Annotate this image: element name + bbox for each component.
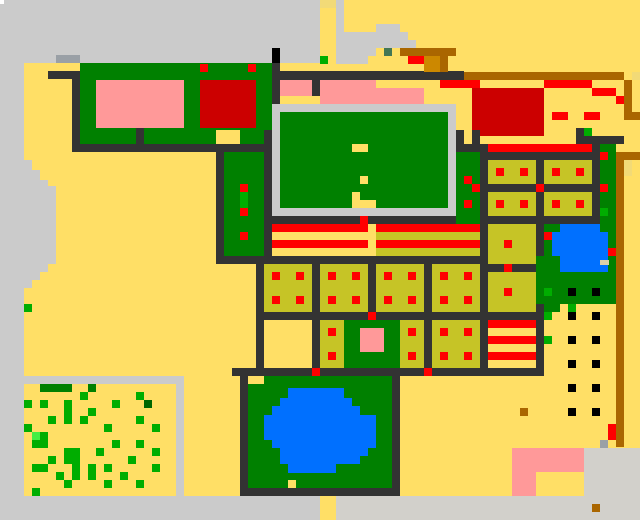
pixel-rect <box>80 416 88 424</box>
pixel-rect <box>576 200 584 208</box>
pixel-rect <box>376 24 400 32</box>
pixel-rect <box>376 240 480 248</box>
pixel-rect <box>392 48 400 56</box>
pixel-rect <box>136 392 144 400</box>
pixel-rect <box>440 328 448 336</box>
pixel-rect <box>352 192 360 200</box>
pixel-rect <box>376 248 480 256</box>
pixel-rect <box>408 352 416 360</box>
east-brown-road <box>616 160 624 447</box>
pixel-rect <box>24 304 32 312</box>
pixel-rect <box>136 416 144 424</box>
pixel-rect <box>272 104 456 112</box>
pixel-rect <box>488 312 536 320</box>
pixel-rect <box>600 440 608 448</box>
teal-cell <box>384 48 392 56</box>
pixel-rect <box>536 184 544 192</box>
pixel-rect <box>152 464 160 472</box>
pixel-rect <box>552 112 568 120</box>
pixel-rect <box>296 296 304 304</box>
pixel-rect <box>296 272 304 280</box>
pixel-rect <box>360 176 368 184</box>
pixel-rect <box>488 152 592 160</box>
pixel-rect <box>264 130 272 264</box>
pixel-rect <box>48 416 56 424</box>
pixel-rect <box>568 408 576 416</box>
pixel-rect <box>256 256 264 368</box>
pixel-rect <box>568 288 576 296</box>
pixel-rect <box>520 200 528 208</box>
white-dot <box>0 0 4 4</box>
pixel-rect <box>136 440 144 448</box>
pixel-rect <box>328 296 336 304</box>
pixel-rect <box>520 168 528 176</box>
pixel-rect <box>480 144 488 376</box>
pixel-rect <box>352 296 360 304</box>
pixel-rect <box>544 80 592 88</box>
pixel-rect <box>520 408 528 416</box>
pixel-rect <box>592 504 600 512</box>
pixel-rect <box>112 440 120 448</box>
pixel-rect <box>104 464 112 472</box>
east-pond <box>552 232 608 256</box>
pixel-rect <box>0 280 32 288</box>
pixel-rect <box>568 312 576 320</box>
pixel-rect <box>32 488 40 496</box>
south-pond <box>288 388 344 398</box>
pixel-rect <box>544 336 552 344</box>
pixel-rect <box>312 80 320 96</box>
pixel-rect <box>400 48 456 56</box>
orange-cell <box>424 56 440 72</box>
pixel-rect <box>608 248 616 256</box>
stripe-house-east <box>376 224 480 232</box>
pixel-rect <box>64 416 72 424</box>
pixel-rect <box>624 112 640 120</box>
pixel-rect <box>592 384 600 392</box>
pixel-rect <box>240 376 248 488</box>
pixel-rect <box>88 464 96 480</box>
pink-shrine <box>360 328 384 352</box>
pixel-rect <box>464 130 472 144</box>
pixel-rect <box>24 424 32 432</box>
se-plaza <box>584 448 640 496</box>
pixel-rect <box>544 232 552 240</box>
pixel-rect <box>616 152 640 160</box>
pixel-rect <box>104 480 112 488</box>
pixel-rect <box>64 448 80 464</box>
pixel-rect <box>584 112 600 120</box>
pixel-rect <box>72 464 80 472</box>
pixel-rect <box>408 272 416 280</box>
pixel-rect <box>616 96 624 104</box>
pixel-rect <box>272 208 456 216</box>
pixel-rect <box>72 79 80 152</box>
pixel-rect <box>384 272 392 280</box>
nw-building-red <box>200 80 256 128</box>
pixel-rect <box>504 288 512 296</box>
pixel-rect <box>152 424 160 432</box>
pixel-rect <box>144 400 152 408</box>
pixel-rect <box>544 312 552 320</box>
pixel-rect <box>488 352 536 360</box>
pixel-rect <box>248 376 264 384</box>
pixel-rect <box>376 232 480 240</box>
pixel-rect <box>272 248 368 256</box>
pixel-rect <box>272 240 368 248</box>
pixel-rect <box>376 48 384 56</box>
pixel-rect <box>264 216 480 224</box>
pixel-rect <box>552 168 560 176</box>
pixel-rect <box>352 200 376 208</box>
pixel-rect <box>176 384 184 496</box>
pixel-rect <box>232 368 480 376</box>
pixel-rect <box>600 184 608 192</box>
pixel-rect <box>352 144 368 152</box>
pixel-rect <box>624 80 632 112</box>
pixel-rect <box>440 296 448 304</box>
stripe-house-west <box>272 224 368 232</box>
pixel-rect <box>384 296 392 304</box>
pixel-rect <box>0 263 48 272</box>
pixel-rect <box>376 40 416 48</box>
pixel-rect <box>80 392 88 400</box>
pixel-rect <box>272 63 280 104</box>
pixel-rect <box>88 408 96 416</box>
pixel-rect <box>512 472 536 496</box>
pixel-rect <box>272 296 280 304</box>
pixel-rect <box>328 272 336 280</box>
pixel-rect <box>264 415 376 440</box>
stripe-house-south <box>488 320 536 328</box>
pixel-rect <box>576 136 624 144</box>
pixel-rect <box>472 184 480 192</box>
pixel-rect <box>464 200 472 208</box>
pixel-rect <box>0 384 24 496</box>
pixel-rect <box>592 336 600 344</box>
pixel-rect <box>408 56 424 64</box>
mid-pink-building <box>320 80 376 104</box>
pixel-rect <box>632 72 640 80</box>
red-marker <box>608 424 616 440</box>
pixel-rect <box>464 328 472 336</box>
south-gate <box>320 496 336 520</box>
pixel-rect <box>240 488 400 496</box>
pixel-rect <box>368 312 376 320</box>
pixel-rect <box>488 264 536 272</box>
pixel-rect <box>0 63 24 160</box>
pixel-rect <box>48 71 80 79</box>
pixel-rect <box>48 456 56 464</box>
pixel-rect <box>368 256 376 320</box>
pixel-rect <box>464 352 472 360</box>
pixel-rect <box>120 472 128 480</box>
pixel-rect <box>64 480 72 488</box>
pixel-rect <box>328 328 336 336</box>
pixel-rect <box>32 432 40 440</box>
central-hall <box>280 112 448 208</box>
pixel-rect <box>272 440 376 448</box>
pixel-rect <box>408 296 416 304</box>
pixel-rect <box>40 432 48 448</box>
pixel-rect <box>40 400 48 408</box>
pixel-rect <box>240 232 248 240</box>
pixel-rect <box>152 448 160 456</box>
pixel-rect <box>336 56 368 64</box>
pixel-rect <box>240 184 248 192</box>
pixel-rect <box>560 224 600 232</box>
pixel-rect <box>536 472 552 496</box>
pixel-rect <box>536 160 544 184</box>
pixel-rect <box>136 480 144 488</box>
pixel-rect <box>376 32 408 40</box>
pixel-rect <box>592 312 600 320</box>
pixel-rect <box>240 192 248 208</box>
pixel-rect <box>272 406 360 415</box>
pixel-rect <box>352 272 360 280</box>
pixel-rect <box>488 336 536 344</box>
pixel-rect <box>280 398 352 406</box>
pixel-rect <box>216 130 240 144</box>
west-gray-road <box>0 288 24 376</box>
pixel-rect <box>288 480 296 488</box>
pixel-rect <box>600 152 608 160</box>
pixel-rect <box>216 152 224 256</box>
pixel-rect <box>104 424 112 432</box>
pixel-rect <box>592 408 600 416</box>
pixel-rect <box>280 80 312 96</box>
pixel-rect <box>128 456 136 464</box>
pixel-rect <box>0 160 32 170</box>
pixel-rect <box>240 208 248 216</box>
pixel-rect <box>0 170 40 180</box>
pixel-rect <box>248 64 256 72</box>
pixel-rect <box>392 376 400 488</box>
pixel-rect <box>56 472 64 480</box>
pixel-rect <box>376 88 424 104</box>
pixel-rect <box>280 71 464 80</box>
pixel-rect <box>448 104 456 216</box>
town-map <box>0 0 640 520</box>
pixel-rect <box>592 360 600 368</box>
pixel-rect <box>568 384 576 392</box>
se-pink-building <box>512 448 584 472</box>
pixel-rect <box>112 400 120 408</box>
pixel-rect <box>64 400 72 416</box>
pixel-rect <box>568 360 576 368</box>
pixel-rect <box>360 216 368 224</box>
pixel-rect <box>440 272 448 280</box>
pixel-rect <box>0 272 40 280</box>
pixel-rect <box>544 288 552 296</box>
pixel-rect <box>424 368 432 376</box>
pixel-rect <box>408 328 416 336</box>
pixel-rect <box>552 200 560 208</box>
gray-block <box>56 55 80 63</box>
pixel-rect <box>568 336 576 344</box>
pixel-rect <box>464 176 472 184</box>
pixel-rect <box>496 168 504 176</box>
pixel-rect <box>280 448 368 456</box>
pixel-rect <box>24 400 32 408</box>
pixel-rect <box>136 128 144 144</box>
pixel-rect <box>328 352 336 360</box>
pixel-rect <box>464 296 472 304</box>
pixel-rect <box>496 200 504 208</box>
pixel-rect <box>472 88 480 136</box>
pixel-rect <box>576 168 584 176</box>
pixel-rect <box>504 264 512 272</box>
pixel-rect <box>320 56 328 64</box>
pixel-rect <box>32 464 40 472</box>
pixel-rect <box>272 232 368 240</box>
pixel-rect <box>0 376 184 384</box>
pixel-rect <box>600 260 609 265</box>
pixel-rect <box>336 32 376 56</box>
pixel-rect <box>336 0 344 32</box>
pixel-rect <box>96 448 104 456</box>
pixel-rect <box>440 352 448 360</box>
pixel-rect <box>592 288 600 296</box>
pixel-rect <box>584 128 592 136</box>
pixel-rect <box>320 0 336 8</box>
pixel-rect <box>504 240 512 248</box>
pixel-rect <box>280 456 360 464</box>
pixel-rect <box>624 160 632 176</box>
pixel-rect <box>480 368 544 376</box>
pixel-rect <box>72 472 80 480</box>
pixel-rect <box>312 368 320 376</box>
black-post <box>272 48 280 63</box>
pixel-rect <box>0 186 56 260</box>
pixel-rect <box>600 208 608 216</box>
pixel-rect <box>72 144 264 152</box>
pixel-rect <box>32 440 40 448</box>
pixel-rect <box>88 384 96 392</box>
pixel-rect <box>464 272 472 280</box>
nw-building-pink <box>96 80 184 128</box>
meadow-hedge <box>40 384 72 392</box>
pixel-rect <box>272 272 280 280</box>
pixel-rect <box>200 64 208 72</box>
ne-red-building <box>480 88 544 136</box>
pixel-rect <box>40 464 48 472</box>
south-gray-band <box>0 496 320 520</box>
east-red-road <box>488 144 592 152</box>
pixel-rect <box>272 112 280 208</box>
pixel-rect <box>568 304 576 312</box>
field-plot <box>488 272 536 312</box>
field-plot <box>488 224 536 264</box>
pixel-rect <box>536 192 544 216</box>
pixel-rect <box>440 80 480 88</box>
pixel-rect <box>288 464 336 473</box>
pixel-rect <box>592 88 616 96</box>
north-brown-road <box>464 72 624 80</box>
